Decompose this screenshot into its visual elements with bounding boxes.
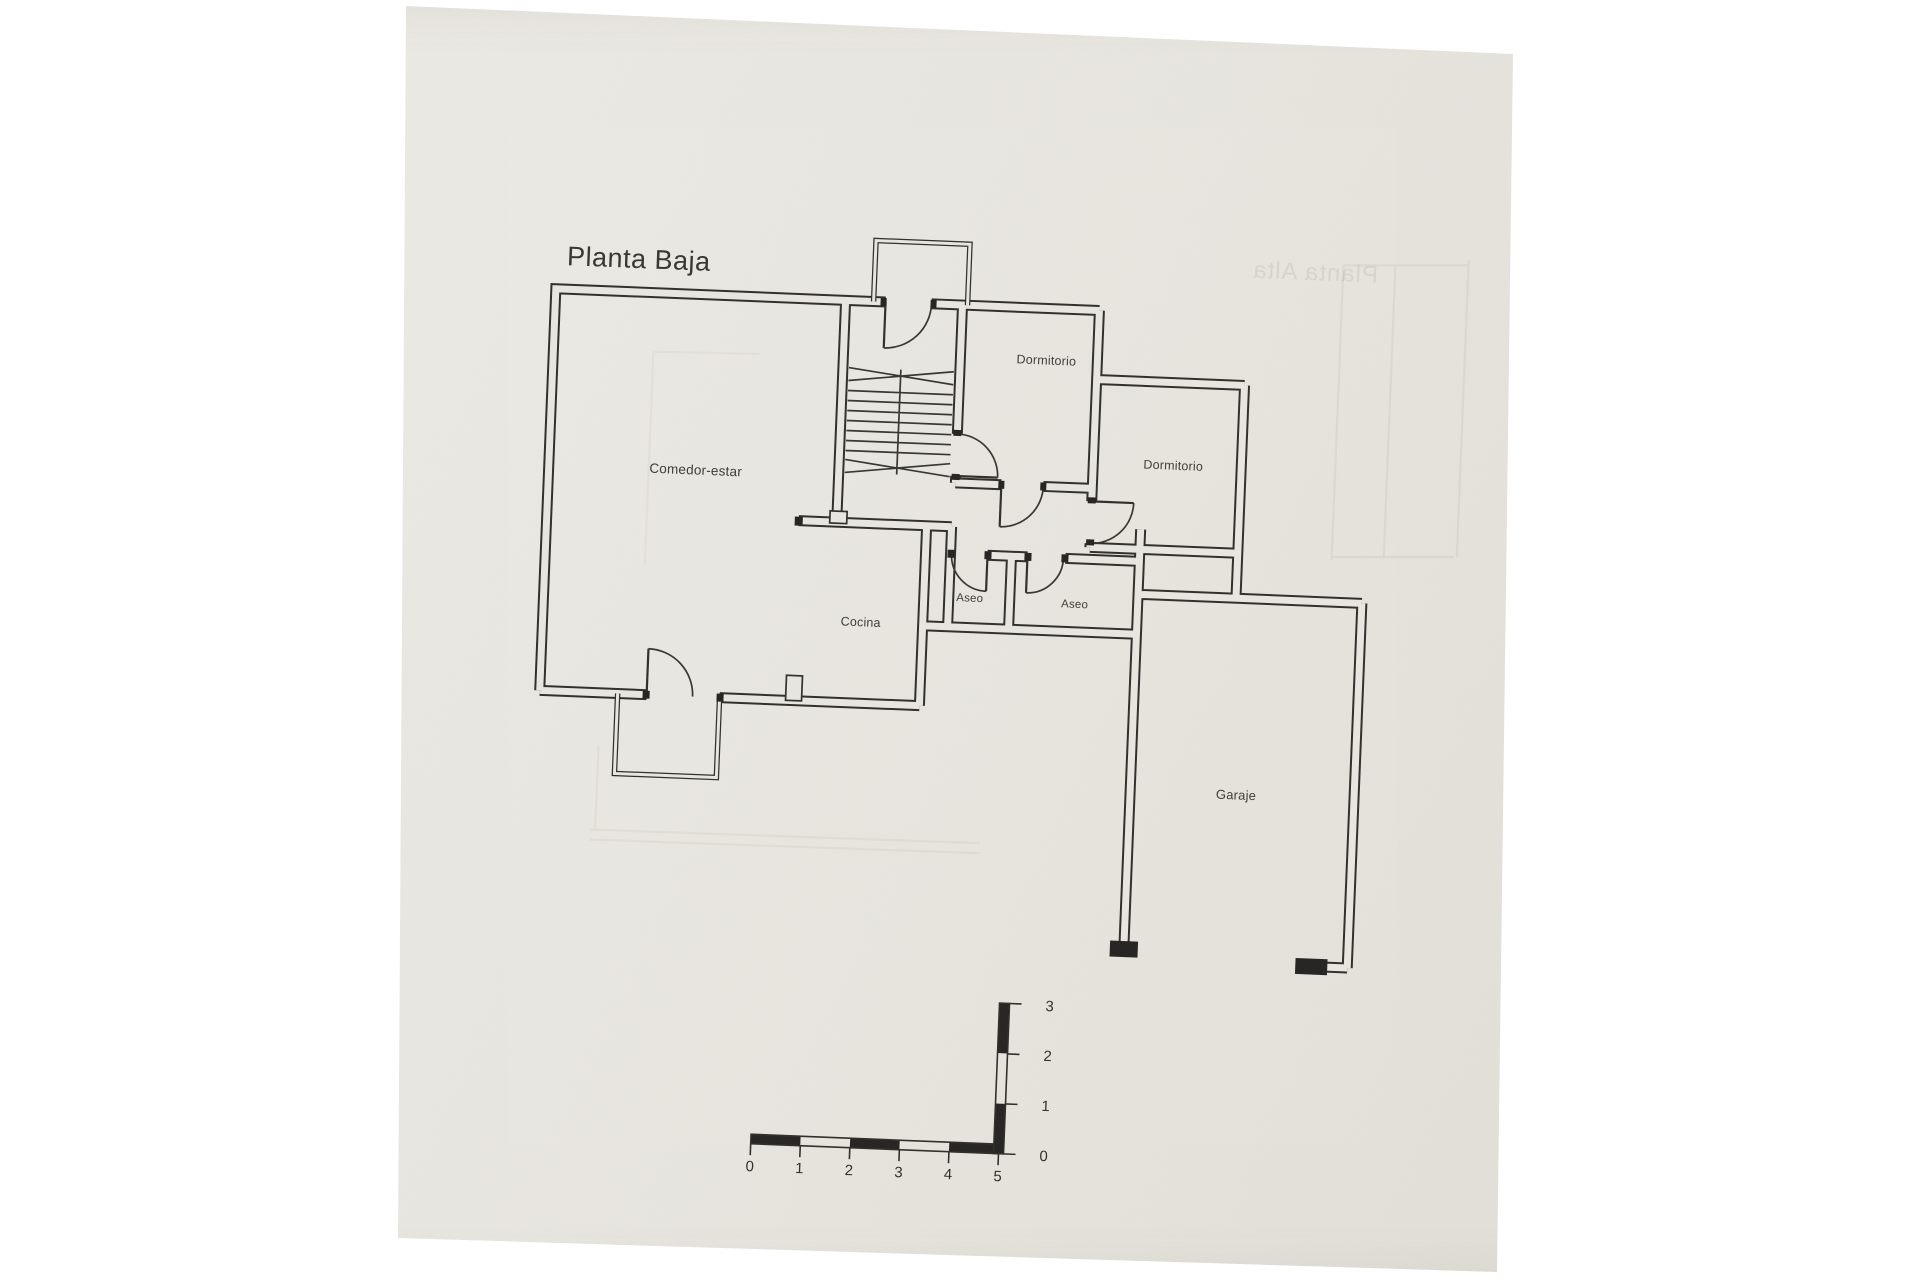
showthrough-title: Planta Alta	[1252, 257, 1379, 289]
room-label-garaje: Garaje	[1216, 787, 1257, 804]
scale-v-1: 1	[1041, 1098, 1050, 1115]
garage-door-jambs	[1109, 940, 1328, 975]
walls	[530, 289, 1373, 968]
scale-v-3: 3	[1045, 998, 1054, 1015]
scale-h-2: 2	[844, 1162, 853, 1179]
hall-door	[1000, 485, 1044, 529]
page-title: Planta Baja	[567, 241, 712, 277]
floor-plan-drawing: Planta Alta Planta Baja	[498, 185, 1499, 1263]
dormitorio1-door	[956, 434, 1000, 478]
scale-h-0: 0	[745, 1158, 754, 1175]
scale-bar: 0 1 2 3 4 5 0 1 2 3	[745, 986, 1054, 1187]
scale-h-4: 4	[944, 1166, 953, 1183]
scale-v-2: 2	[1043, 1048, 1052, 1065]
scale-h-1: 1	[795, 1160, 804, 1177]
room-label-comedor-estar: Comedor-estar	[649, 461, 742, 480]
scale-bar-v-labels: 0 1 2 3	[1039, 998, 1054, 1165]
room-label-aseo-2: Aseo	[1061, 598, 1088, 611]
paper-sheet: Planta Alta Planta Baja	[0, 0, 1920, 1280]
room-label-cocina: Cocina	[840, 614, 881, 630]
room-label-dormitorio-2: Dormitorio	[1143, 457, 1203, 473]
entry-door	[884, 302, 932, 350]
pilasters	[786, 509, 848, 702]
room-label-aseo-1: Aseo	[956, 592, 983, 605]
scale-h-5: 5	[993, 1168, 1002, 1185]
photo-background: Planta Alta Planta Baja	[0, 0, 1920, 1280]
scale-h-3: 3	[894, 1164, 903, 1181]
showthrough-lines	[590, 226, 1469, 874]
aseo2-door	[1026, 557, 1063, 594]
staircase	[845, 368, 954, 477]
scale-bar-h-labels: 0 1 2 3 4 5	[745, 1158, 1002, 1185]
room-label-dormitorio-1: Dormitorio	[1016, 352, 1076, 368]
terrace-door	[647, 649, 695, 697]
scale-v-0: 0	[1039, 1148, 1048, 1165]
floor-plan-rotation-wrapper: Planta Alta Planta Baja	[498, 185, 1499, 1263]
dormitorio2-door	[1090, 501, 1134, 545]
